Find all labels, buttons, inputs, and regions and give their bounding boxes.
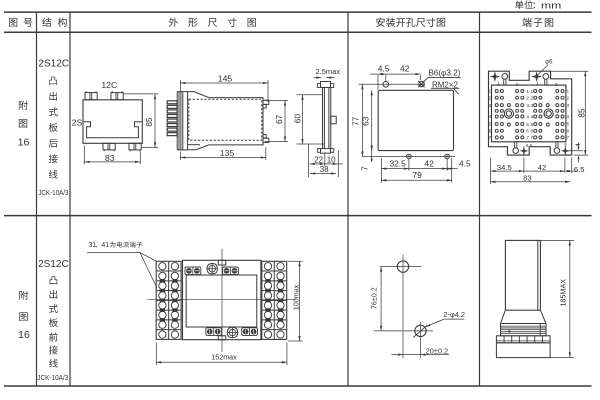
svg-text:83: 83	[523, 174, 531, 183]
svg-text:2S12C: 2S12C	[38, 58, 69, 69]
svg-text:100max: 100max	[291, 284, 300, 310]
svg-text:12C: 12C	[101, 80, 117, 90]
svg-text:6.5: 6.5	[574, 165, 585, 174]
svg-text:22: 22	[314, 155, 323, 164]
svg-text:2: 2	[526, 96, 529, 101]
svg-text:7: 7	[531, 135, 534, 140]
svg-text:7: 7	[361, 166, 370, 171]
svg-text:60: 60	[294, 114, 303, 124]
svg-text:77: 77	[352, 116, 361, 126]
svg-text:φ6: φ6	[545, 60, 553, 66]
svg-text:31: 31	[88, 242, 96, 249]
svg-text:20±0.2: 20±0.2	[426, 347, 449, 356]
svg-text:2: 2	[516, 82, 519, 87]
svg-text:34.5: 34.5	[497, 163, 512, 172]
svg-text:76±0.2: 76±0.2	[370, 287, 379, 309]
svg-text:1: 1	[531, 89, 534, 94]
svg-text:mm: mm	[541, 0, 561, 11]
svg-text:79: 79	[412, 170, 422, 180]
svg-text:JCK-10A/3: JCK-10A/3	[38, 188, 68, 197]
svg-text:5: 5	[526, 122, 529, 127]
svg-text:41: 41	[101, 242, 109, 249]
svg-text:2S12C: 2S12C	[38, 259, 69, 270]
svg-text:3: 3	[531, 103, 534, 108]
svg-text:4: 4	[575, 143, 582, 147]
svg-text:145: 145	[218, 73, 233, 83]
svg-text:7: 7	[526, 135, 529, 140]
svg-text:B6(φ3.2): B6(φ3.2)	[428, 69, 460, 78]
svg-text:185MAX: 185MAX	[559, 279, 568, 307]
svg-text:4: 4	[526, 114, 529, 119]
svg-text:4: 4	[531, 114, 534, 119]
svg-text:6: 6	[526, 129, 529, 134]
svg-text:67: 67	[275, 115, 284, 125]
svg-text:6: 6	[531, 129, 534, 134]
svg-text:2S: 2S	[72, 118, 83, 128]
svg-text:2: 2	[555, 82, 558, 87]
svg-text:2-φ4.2: 2-φ4.2	[443, 310, 465, 319]
svg-text:83: 83	[105, 153, 115, 163]
svg-text:42: 42	[400, 63, 410, 73]
svg-text:152max: 152max	[211, 353, 237, 362]
svg-text:1: 1	[526, 89, 529, 94]
svg-text:135: 135	[220, 148, 235, 158]
svg-text:4.5: 4.5	[378, 63, 390, 73]
svg-text:16: 16	[18, 329, 30, 341]
svg-text:38: 38	[320, 165, 329, 174]
svg-text:85: 85	[578, 108, 587, 118]
svg-text:4.5: 4.5	[459, 159, 471, 169]
svg-text:JCK-10A/3: JCK-10A/3	[37, 373, 68, 382]
svg-text:2: 2	[531, 96, 534, 101]
svg-text:32.5: 32.5	[389, 159, 406, 169]
svg-text:5: 5	[531, 122, 534, 127]
svg-text:42: 42	[538, 163, 546, 172]
svg-text:85: 85	[145, 117, 154, 127]
svg-text:10: 10	[327, 155, 336, 164]
svg-text:63: 63	[361, 116, 370, 126]
svg-text:3: 3	[526, 103, 529, 108]
svg-text:2.5max: 2.5max	[315, 67, 340, 76]
svg-text:42: 42	[424, 159, 434, 169]
svg-text:16: 16	[18, 137, 30, 149]
